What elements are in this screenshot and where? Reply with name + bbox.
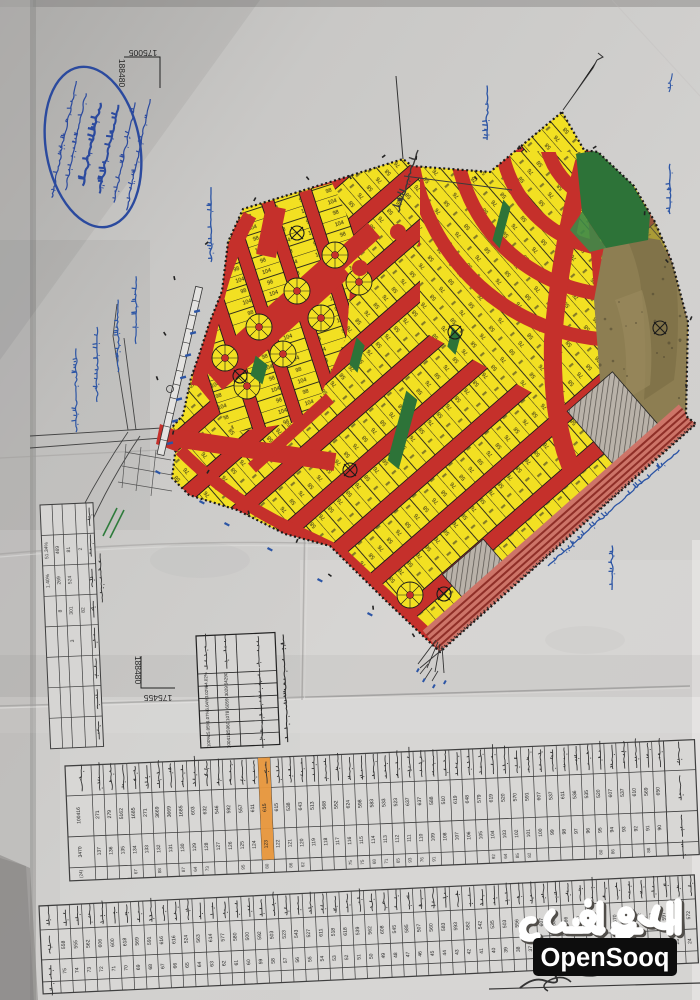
svg-text:129: 129 [192, 843, 198, 852]
svg-text:592: 592 [257, 931, 263, 940]
svg-text:614: 614 [208, 933, 214, 942]
svg-text:637: 637 [417, 797, 423, 806]
svg-text:71: 71 [384, 858, 389, 864]
svg-text:563: 563 [196, 934, 202, 943]
svg-text:618: 618 [343, 927, 349, 936]
svg-text:51.34%: 51.34% [44, 541, 51, 559]
svg-text:535: 535 [490, 920, 496, 929]
svg-text:40: 40 [491, 947, 497, 953]
svg-text:59: 59 [258, 958, 264, 964]
svg-text:533: 533 [381, 798, 387, 807]
svg-text:117: 117 [335, 837, 341, 845]
svg-text:128: 128 [204, 842, 210, 851]
svg-text:69: 69 [136, 964, 142, 970]
svg-text:6059: 6059 [224, 698, 229, 709]
svg-text:607: 607 [536, 792, 542, 801]
svg-text:568: 568 [321, 801, 327, 810]
svg-text:52: 52 [344, 954, 350, 960]
svg-text:45: 45 [430, 950, 436, 956]
svg-text:137: 137 [96, 847, 102, 856]
svg-text:131: 131 [168, 844, 174, 853]
svg-text:60: 60 [246, 959, 252, 965]
svg-text:503: 503 [502, 919, 508, 928]
svg-text:(24): (24) [78, 869, 83, 878]
svg-text:104: 104 [490, 830, 496, 839]
svg-text:513: 513 [309, 801, 315, 810]
svg-text:3029: 3029 [224, 686, 229, 697]
svg-text:188480: 188480 [117, 59, 127, 88]
svg-text:86: 86 [610, 849, 615, 855]
svg-text:542: 542 [477, 921, 483, 930]
svg-text:557: 557 [238, 804, 244, 813]
svg-text:271: 271 [143, 808, 149, 817]
svg-text:101: 101 [526, 829, 532, 838]
svg-text:64: 64 [193, 866, 198, 872]
svg-text:50: 50 [369, 953, 375, 959]
svg-text:598: 598 [357, 799, 363, 808]
svg-text:92: 92 [633, 826, 639, 832]
svg-text:637: 637 [405, 797, 411, 806]
svg-text:88: 88 [646, 847, 651, 853]
svg-text:75: 75 [348, 860, 353, 866]
svg-text:55: 55 [307, 956, 313, 962]
svg-text:6.04%: 6.04% [204, 698, 210, 711]
svg-text:62: 62 [300, 862, 305, 868]
svg-text:102: 102 [514, 829, 520, 838]
svg-text:91: 91 [645, 825, 651, 831]
svg-text:591: 591 [524, 792, 530, 801]
svg-text:618: 618 [122, 937, 128, 946]
svg-text:116: 116 [347, 836, 353, 844]
svg-text:110: 110 [418, 833, 424, 841]
svg-text:570: 570 [512, 793, 518, 802]
svg-text:120: 120 [299, 838, 305, 847]
svg-text:537: 537 [620, 788, 626, 797]
svg-text:503: 503 [269, 930, 275, 939]
svg-text:65: 65 [185, 962, 191, 968]
svg-text:51: 51 [356, 954, 362, 960]
svg-text:73: 73 [205, 866, 210, 872]
svg-text:527: 527 [306, 929, 312, 938]
svg-text:624: 624 [345, 800, 351, 809]
svg-text:520: 520 [596, 789, 602, 798]
svg-text:115: 115 [359, 836, 365, 844]
svg-text:271: 271 [95, 810, 101, 819]
svg-text:72: 72 [99, 966, 105, 972]
svg-text:1685: 1685 [131, 807, 137, 819]
svg-text:75: 75 [360, 859, 365, 865]
svg-text:106: 106 [466, 831, 472, 840]
svg-text:112: 112 [395, 834, 401, 842]
svg-text:3470: 3470 [77, 846, 83, 858]
svg-text:93: 93 [621, 826, 627, 832]
svg-text:537: 537 [548, 791, 554, 800]
svg-text:75: 75 [62, 968, 68, 974]
svg-text:70: 70 [123, 965, 129, 971]
svg-text:73: 73 [87, 967, 93, 973]
svg-text:524: 524 [67, 575, 73, 584]
svg-text:301: 301 [68, 606, 74, 615]
svg-text:132: 132 [156, 844, 162, 853]
svg-text:539: 539 [355, 926, 361, 935]
svg-text:67: 67 [160, 963, 166, 969]
svg-text:3669: 3669 [154, 806, 160, 818]
svg-text:81: 81 [66, 546, 72, 552]
svg-text:64: 64 [503, 853, 508, 859]
svg-text:38: 38 [516, 946, 522, 952]
svg-text:68: 68 [372, 859, 377, 865]
svg-text:109: 109 [430, 833, 436, 842]
svg-text:611: 611 [318, 928, 324, 937]
svg-text:3.02%: 3.02% [204, 686, 210, 699]
svg-text:24: 24 [687, 938, 693, 944]
svg-text:44: 44 [442, 950, 448, 956]
svg-text:90: 90 [657, 825, 663, 831]
svg-text:53: 53 [332, 955, 338, 961]
svg-text:593: 593 [453, 922, 459, 931]
svg-text:121: 121 [287, 839, 293, 848]
svg-text:632: 632 [202, 806, 208, 815]
svg-text:95: 95 [597, 827, 603, 833]
svg-text:592: 592 [226, 805, 232, 814]
svg-text:650: 650 [655, 787, 661, 796]
svg-text:118: 118 [323, 837, 329, 845]
svg-text:41: 41 [479, 948, 485, 954]
svg-text:555: 555 [73, 940, 79, 949]
svg-text:39: 39 [503, 947, 509, 953]
svg-text:97: 97 [574, 828, 580, 834]
svg-text:125: 125 [239, 841, 245, 850]
svg-text:103: 103 [502, 830, 508, 839]
svg-text:91: 91 [431, 856, 436, 862]
svg-text:611: 611 [560, 791, 566, 800]
svg-text:42: 42 [467, 948, 473, 954]
svg-text:63: 63 [209, 961, 215, 967]
svg-text:538: 538 [286, 802, 292, 811]
svg-text:603: 603 [190, 806, 196, 815]
svg-text:619: 619 [488, 794, 494, 803]
svg-text:520: 520 [500, 793, 506, 802]
svg-text:64: 64 [197, 961, 203, 967]
svg-text:577: 577 [220, 933, 226, 942]
svg-text:523: 523 [393, 798, 399, 807]
svg-text:175455: 175455 [144, 693, 173, 703]
svg-text:1.07%: 1.07% [205, 710, 211, 723]
svg-text:8: 8 [58, 609, 64, 612]
svg-text:65: 65 [396, 858, 401, 864]
svg-text:87: 87 [181, 867, 186, 873]
svg-text:615: 615 [262, 803, 268, 812]
svg-text:100%: 100% [206, 736, 211, 748]
svg-text:76: 76 [419, 857, 424, 863]
svg-text:86: 86 [288, 862, 293, 868]
svg-text:122: 122 [275, 839, 281, 848]
svg-text:62: 62 [221, 960, 227, 966]
svg-text:93: 93 [407, 857, 412, 863]
svg-text:469: 469 [55, 546, 61, 555]
svg-text:133: 133 [144, 845, 150, 854]
svg-text:94: 94 [609, 827, 615, 833]
svg-text:523: 523 [281, 930, 287, 939]
svg-text:82: 82 [80, 607, 86, 613]
svg-text:588: 588 [429, 796, 435, 805]
svg-text:49: 49 [381, 953, 387, 959]
svg-text:64290: 64290 [223, 672, 229, 685]
svg-text:80: 80 [264, 863, 269, 869]
svg-text:100418: 100418 [226, 732, 232, 748]
svg-text:643: 643 [298, 802, 304, 811]
svg-text:500: 500 [245, 932, 251, 941]
svg-text:1.40%: 1.40% [45, 573, 52, 588]
svg-text:46: 46 [417, 951, 423, 957]
svg-text:107: 107 [454, 832, 460, 841]
svg-text:616: 616 [171, 935, 177, 944]
svg-text:616: 616 [159, 936, 165, 945]
svg-text:92: 92 [491, 854, 496, 860]
svg-text:119: 119 [311, 838, 317, 846]
svg-text:615: 615 [274, 803, 280, 812]
svg-text:569: 569 [644, 787, 650, 796]
svg-text:105: 105 [478, 831, 484, 840]
svg-text:1078: 1078 [225, 710, 230, 721]
svg-text:610: 610 [632, 788, 638, 797]
svg-text:98: 98 [562, 829, 568, 835]
svg-text:136: 136 [108, 846, 114, 855]
svg-text:82: 82 [527, 852, 532, 858]
svg-text:562: 562 [85, 939, 91, 948]
svg-text:608: 608 [379, 925, 385, 934]
svg-text:546: 546 [214, 805, 220, 814]
svg-text:100416: 100416 [76, 807, 83, 824]
svg-text:85: 85 [515, 853, 520, 859]
svg-text:569: 569 [134, 937, 140, 946]
svg-text:2: 2 [78, 547, 84, 550]
svg-text:54: 54 [319, 955, 325, 961]
svg-text:100: 100 [538, 828, 544, 837]
svg-text:108: 108 [442, 832, 448, 841]
svg-text:279: 279 [107, 810, 113, 819]
svg-text:606: 606 [98, 939, 104, 948]
svg-text:57: 57 [283, 957, 289, 963]
svg-text:558: 558 [61, 940, 67, 949]
svg-text:535: 535 [584, 790, 590, 799]
svg-text:619: 619 [453, 795, 459, 804]
svg-text:648: 648 [465, 795, 471, 804]
svg-text:583: 583 [369, 799, 375, 808]
svg-text:123: 123 [263, 840, 269, 849]
svg-text:61: 61 [234, 960, 240, 966]
svg-text:579: 579 [477, 794, 483, 803]
svg-text:126: 126 [228, 841, 234, 850]
svg-text:507: 507 [416, 923, 422, 932]
svg-text:67: 67 [133, 869, 138, 875]
svg-text:114: 114 [371, 835, 377, 843]
svg-text:580: 580 [232, 932, 238, 941]
svg-text:510: 510 [441, 796, 447, 805]
svg-text:56: 56 [295, 957, 301, 963]
svg-text:583: 583 [441, 922, 447, 931]
svg-text:47: 47 [405, 951, 411, 957]
svg-text:5162: 5162 [119, 808, 125, 820]
svg-text:113: 113 [383, 835, 389, 843]
svg-text:562: 562 [367, 926, 373, 935]
svg-text:518: 518 [330, 927, 336, 936]
svg-text:64.02%: 64.02% [203, 672, 209, 687]
svg-text:68: 68 [148, 964, 154, 970]
svg-text:188480: 188480 [133, 656, 143, 685]
svg-text:135: 135 [120, 846, 126, 855]
svg-text:124: 124 [251, 840, 257, 849]
svg-text:66: 66 [172, 962, 178, 968]
svg-text:74: 74 [74, 967, 80, 973]
svg-text:43: 43 [454, 949, 460, 955]
svg-text:58: 58 [270, 958, 276, 964]
svg-text:552: 552 [333, 800, 339, 809]
svg-text:536: 536 [572, 790, 578, 799]
svg-text:95: 95 [240, 864, 245, 870]
svg-text:88: 88 [157, 868, 162, 874]
svg-text:127: 127 [216, 842, 222, 851]
svg-text:25960: 25960 [225, 721, 231, 734]
svg-text:25.85%: 25.85% [205, 721, 211, 736]
svg-text:71: 71 [111, 965, 117, 971]
svg-text:585: 585 [404, 924, 410, 933]
svg-text:48: 48 [393, 952, 399, 958]
svg-text:99: 99 [550, 829, 556, 835]
svg-text:80: 80 [598, 849, 603, 855]
svg-text:96: 96 [585, 828, 591, 834]
svg-text:134: 134 [132, 845, 138, 854]
svg-text:524: 524 [183, 934, 189, 943]
svg-text:269: 269 [56, 576, 62, 585]
svg-text:543: 543 [294, 929, 300, 938]
svg-text:591: 591 [147, 936, 153, 945]
svg-text:607: 607 [608, 789, 614, 798]
svg-text:611: 611 [250, 804, 256, 813]
svg-text:3669: 3669 [166, 806, 172, 818]
svg-text:175005: 175005 [129, 48, 158, 58]
svg-text:560: 560 [428, 923, 434, 932]
svg-text:1685: 1685 [178, 805, 184, 817]
svg-text:OpenSooq: OpenSooq [541, 944, 670, 972]
svg-text:545: 545 [392, 925, 398, 934]
svg-text:582: 582 [465, 921, 471, 930]
svg-text:3: 3 [70, 639, 76, 642]
svg-text:600: 600 [110, 938, 116, 947]
svg-text:111: 111 [406, 834, 412, 842]
svg-text:572: 572 [686, 911, 692, 920]
svg-text:130: 130 [180, 843, 186, 852]
